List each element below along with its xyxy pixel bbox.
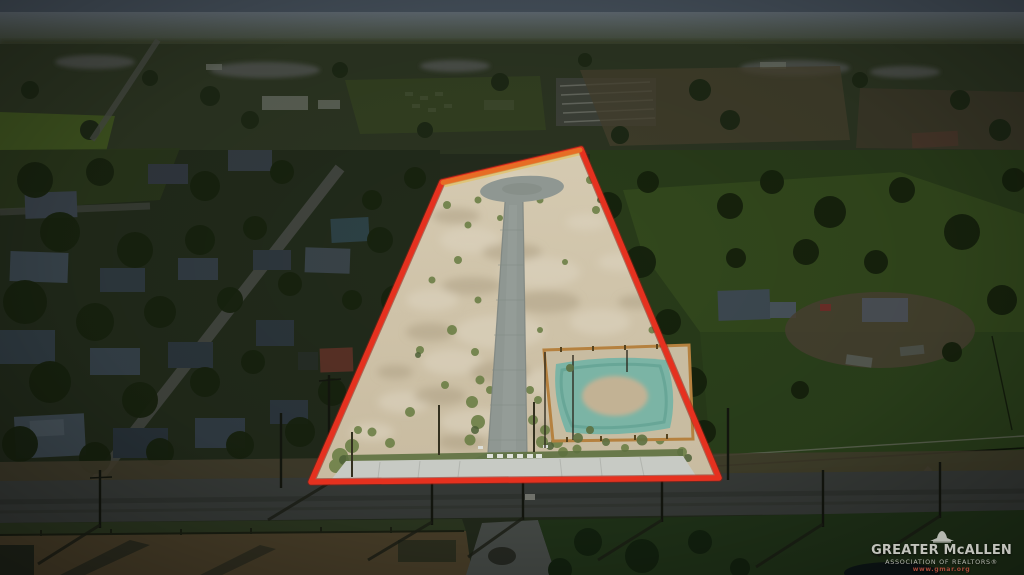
aerial-photo-canvas bbox=[0, 0, 1024, 575]
watermark-org-subtitle: ASSOCIATION OF REALTORS® bbox=[871, 559, 1012, 566]
watermark-website: www.gmar.org bbox=[871, 566, 1012, 573]
gmar-logo-icon bbox=[929, 530, 955, 543]
watermark-org-name: GREATER McALLEN bbox=[871, 544, 1012, 559]
aerial-photo: GREATER McALLEN ASSOCIATION OF REALTORS®… bbox=[0, 0, 1024, 575]
watermark: GREATER McALLEN ASSOCIATION OF REALTORS®… bbox=[871, 530, 1012, 573]
